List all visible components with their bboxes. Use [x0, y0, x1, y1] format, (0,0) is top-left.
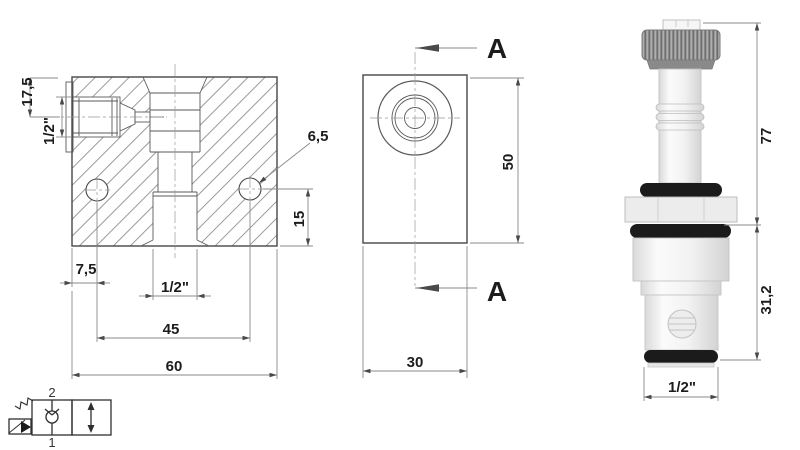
knurled-cap — [642, 30, 720, 60]
cross-port-hole — [668, 310, 696, 338]
body-neck — [641, 281, 721, 295]
flow-arrow-icon — [88, 402, 95, 433]
valve-technical-drawing: 17,5 1/2" 6,5 15 7,5 — [0, 0, 800, 450]
valve-symbol-schematic: 2 1 — [9, 385, 111, 450]
dim-cartridge-thread: 1/2" — [644, 367, 718, 401]
cap-base-band — [647, 60, 715, 69]
section-label-bottom: A — [487, 276, 507, 307]
dim-top-offset: 17,5 — [19, 77, 60, 117]
dim-label-60: 60 — [166, 358, 183, 375]
section-arrow-bottom: A — [415, 276, 507, 307]
dim-label-7-5: 7,5 — [76, 261, 97, 278]
dim-label-77: 77 — [758, 128, 775, 145]
o-ring-middle — [630, 224, 731, 238]
cartridge-photo: 77 31,2 1/2" — [625, 20, 775, 401]
o-ring-top — [640, 183, 722, 197]
dim-label-15: 15 — [291, 211, 308, 228]
dim-label-45: 45 — [163, 321, 180, 338]
o-ring-bottom — [644, 350, 718, 363]
dim-label-17-5: 17,5 — [19, 77, 36, 106]
section-arrow-bottom-icon — [416, 284, 439, 292]
dim-label-6-5: 6,5 — [308, 128, 329, 145]
upper-body — [633, 238, 729, 281]
spring-icon — [15, 398, 33, 409]
dim-label-30: 30 — [407, 354, 424, 371]
dim-label-half-inch-cartridge: 1/2" — [668, 379, 696, 396]
technical-drawing-page: 17,5 1/2" 6,5 15 7,5 — [0, 0, 800, 450]
dim-label-half-inch-left: 1/2" — [41, 117, 58, 145]
section-arrow-top: A — [415, 33, 507, 64]
dim-label-31-2: 31,2 — [758, 285, 775, 314]
symbol-port-2-label: 2 — [48, 385, 55, 400]
hex-body — [625, 197, 737, 222]
bottom-edge — [648, 363, 714, 367]
stem-ribs — [656, 104, 704, 130]
dim-block-height: 50 — [470, 78, 524, 243]
front-section-view: 17,5 1/2" 6,5 15 7,5 — [19, 64, 328, 379]
side-view: A A 50 30 — [363, 33, 524, 378]
dim-label-half-inch-bottom: 1/2" — [161, 279, 189, 296]
solenoid-icon — [9, 419, 31, 434]
symbol-port-1-label: 1 — [48, 435, 55, 450]
check-valve-icon — [45, 400, 59, 435]
dim-label-50: 50 — [500, 154, 517, 171]
dim-block-width: 60 — [72, 249, 277, 379]
section-label-top: A — [487, 33, 507, 64]
section-arrow-top-icon — [416, 44, 439, 52]
